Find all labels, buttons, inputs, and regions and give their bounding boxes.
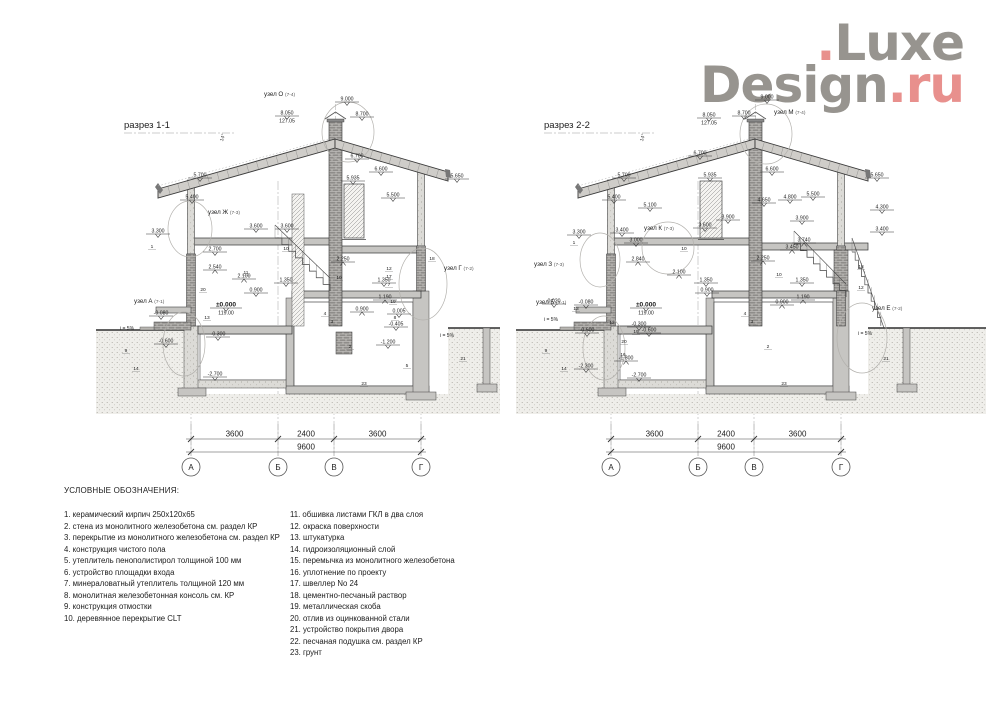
slope-label: i = 5%	[544, 317, 559, 323]
svg-text:6.700: 6.700	[351, 153, 364, 159]
svg-text:8.700: 8.700	[738, 110, 751, 116]
svg-text:1.350: 1.350	[280, 277, 293, 283]
dimension-total: 9600	[717, 443, 735, 452]
section-title-text: разрез 2-2	[544, 120, 590, 131]
callout-number: 1	[151, 244, 154, 250]
callout-number: 21	[460, 356, 466, 362]
svg-text:0.005: 0.005	[393, 308, 406, 314]
elevation-mark: ±0.000119.00	[630, 301, 662, 316]
roof	[575, 139, 871, 198]
svg-text:3.300: 3.300	[573, 229, 586, 235]
dimension-value: 3600	[646, 430, 664, 439]
svg-text:3.600: 3.600	[699, 222, 712, 228]
legend-column-1: 1. керамический кирпич 250x120x652. стен…	[64, 509, 290, 659]
legend-item: 14. гидроизоляционный слой	[290, 544, 516, 556]
legend-item: 11. обшивка листами ГКЛ в два слоя	[290, 509, 516, 521]
roof-pitch-label: 14°	[219, 133, 227, 142]
callout-number: 3	[751, 319, 754, 325]
callout-number: 23	[781, 381, 787, 387]
callout-number: 20	[200, 287, 206, 293]
svg-text:5.700: 5.700	[194, 172, 207, 178]
svg-text:3.300: 3.300	[152, 228, 165, 234]
svg-text:0.020: 0.020	[548, 298, 561, 304]
axis-letter: А	[608, 463, 614, 472]
slope-label: i = 5%	[440, 333, 455, 339]
svg-text:1.350: 1.350	[796, 277, 809, 283]
svg-text:8.700: 8.700	[356, 111, 369, 117]
callout-number: 4	[324, 311, 327, 317]
svg-text:-0.080: -0.080	[579, 299, 594, 305]
legend-item: 2. стена из монолитного железобетона см.…	[64, 521, 290, 533]
svg-text:3.600: 3.600	[281, 223, 294, 229]
legend-item: 3. перекрытие из монолитного железобетон…	[64, 532, 290, 544]
callout-number: 9	[125, 348, 128, 354]
legend-item: 12. окраска поверхности	[290, 521, 516, 533]
svg-text:1.190: 1.190	[797, 294, 810, 300]
legend-item: 7. минераловатный утеплитель толщиной 12…	[64, 578, 290, 590]
svg-text:5.650: 5.650	[871, 172, 884, 178]
callout-number: 17	[386, 274, 392, 280]
svg-text:-2.700: -2.700	[208, 371, 223, 377]
svg-text:2.540: 2.540	[209, 264, 222, 270]
svg-text:-2.700: -2.700	[632, 372, 647, 378]
svg-text:5.100: 5.100	[644, 202, 657, 208]
axis-letter: Г	[839, 463, 844, 472]
axis-letter: В	[751, 463, 756, 472]
svg-text:-1.200: -1.200	[381, 339, 396, 345]
elevation-mark: 8.050127.05	[275, 110, 299, 124]
elevation-mark: 2.540	[203, 264, 227, 273]
callout-number: 12	[858, 285, 864, 291]
legend-item: 8. монолитная железобетонная консоль см.…	[64, 590, 290, 602]
axis-letter: Г	[419, 463, 424, 472]
node-label: узел Ж (7-3)	[208, 209, 240, 216]
svg-text:0.900: 0.900	[701, 287, 714, 293]
svg-text:5.500: 5.500	[807, 191, 820, 197]
legend-item: 10. деревянное перекрытие CLT	[64, 613, 290, 625]
svg-text:-0.600: -0.600	[159, 338, 174, 344]
svg-text:-0.600: -0.600	[580, 327, 595, 333]
svg-text:5.400: 5.400	[186, 194, 199, 200]
svg-text:4.650: 4.650	[758, 197, 771, 203]
dimension-value: 3600	[369, 430, 387, 439]
svg-text:5.400: 5.400	[608, 194, 621, 200]
svg-text:3.400: 3.400	[876, 226, 889, 232]
legend-item: 4. конструкция чистого пола	[64, 544, 290, 556]
callout-number: 23	[361, 381, 367, 387]
node-label: узел К (7-3)	[644, 225, 674, 232]
attic-window	[342, 184, 366, 240]
svg-text:3.900: 3.900	[796, 215, 809, 221]
elevation-mark: 8.050127.05	[697, 112, 721, 126]
svg-text:±0.000: ±0.000	[636, 301, 656, 308]
elevation-mark: 3.900	[790, 215, 814, 224]
elevation-mark: 6.600	[760, 166, 784, 175]
svg-text:-2.300: -2.300	[579, 363, 594, 369]
elevation-mark: 3.300	[146, 228, 170, 237]
roof	[155, 139, 451, 198]
callout-number: 8	[394, 315, 397, 321]
node-label: узел Г (7-2)	[444, 265, 474, 272]
svg-text:1.350: 1.350	[700, 277, 713, 283]
elevation-mark: 3.300	[567, 229, 591, 238]
svg-text:8.050: 8.050	[281, 110, 294, 116]
callout-number: 10	[681, 246, 687, 252]
section-drawing-1-1: узел О (7-4)узел Ж (7-3)узел Г (7-2)узел…	[96, 86, 566, 486]
svg-text:3.740: 3.740	[798, 237, 811, 243]
legend-item: 5. утеплитель пенополистирол толщиной 10…	[64, 555, 290, 567]
legend-item: 16. уплотнение по проекту	[290, 567, 516, 579]
axis-letter: Б	[275, 463, 280, 472]
svg-text:6.600: 6.600	[766, 166, 779, 172]
svg-text:0.900: 0.900	[250, 287, 263, 293]
svg-text:3.600: 3.600	[250, 223, 263, 229]
drawing-sheet: .Luxe Design.ru узел О (7-4)узел Ж (7-3)…	[0, 0, 1000, 707]
legend-item: 13. штукатурка	[290, 532, 516, 544]
callout-number: 20	[621, 339, 627, 345]
svg-text:5.500: 5.500	[387, 192, 400, 198]
external-stair	[852, 238, 884, 328]
elevation-mark: 3.600	[244, 223, 268, 232]
callout-number: 4	[744, 311, 747, 317]
callout-number: 14	[561, 366, 567, 372]
svg-text:0.900: 0.900	[356, 306, 369, 312]
svg-text:6.600: 6.600	[375, 166, 388, 172]
callout-number: 2	[767, 344, 770, 350]
callout-number: 10	[283, 246, 289, 252]
legend-item: 1. керамический кирпич 250x120x65	[64, 509, 290, 521]
furnace	[336, 332, 352, 354]
node-label: узел М (7-4)	[774, 109, 806, 116]
roof-pitch-label: 14°	[639, 133, 647, 142]
svg-text:9.000: 9.000	[761, 94, 774, 100]
svg-text:4.800: 4.800	[784, 194, 797, 200]
callout-number: 1	[573, 240, 576, 246]
elevation-mark: 5.500	[381, 192, 405, 201]
elevation-mark: 0.900	[244, 287, 268, 296]
legend-item: 20. отлив из оцинкованной стали	[290, 613, 516, 625]
elevation-mark: 4.800	[778, 194, 802, 203]
svg-text:0.900: 0.900	[776, 299, 789, 305]
elevation-mark: 5.935	[341, 175, 365, 184]
svg-text:5.650: 5.650	[451, 173, 464, 179]
section-title-text: разрез 1-1	[124, 120, 170, 131]
svg-text:3.450: 3.450	[786, 244, 799, 250]
callout-number: 12	[609, 320, 615, 326]
svg-text:±0.000: ±0.000	[216, 301, 236, 308]
svg-text:5.935: 5.935	[704, 172, 717, 178]
callout-number: 21	[883, 356, 889, 362]
legend-column-2: 11. обшивка листами ГКЛ в два слоя12. ок…	[290, 509, 516, 659]
svg-text:3.400: 3.400	[616, 227, 629, 233]
elevation-mark: 5.935	[698, 172, 722, 181]
callout-number: 14	[133, 366, 139, 372]
dimension-strip: 3600240036009600АБВГ	[182, 424, 430, 476]
svg-text:6.700: 6.700	[694, 150, 707, 156]
node-label: узел А (7-1)	[134, 298, 165, 305]
callout-number: 7	[388, 282, 391, 288]
dimension-value: 2400	[297, 430, 315, 439]
svg-text:8.050: 8.050	[703, 112, 716, 118]
legend-columns: 1. керамический кирпич 250x120x652. стен…	[64, 509, 516, 659]
callout-number: 3	[331, 319, 334, 325]
dimension-value: 2400	[717, 430, 735, 439]
svg-text:2.840: 2.840	[632, 256, 645, 262]
legend-item: 19. металлическая скоба	[290, 601, 516, 613]
legend: УСЛОВНЫЕ ОБОЗНАЧЕНИЯ: 1. керамический ки…	[64, 486, 516, 659]
svg-text:5.700: 5.700	[618, 172, 631, 178]
elevation-mark: 5.500	[801, 191, 825, 200]
elevation-mark: 5.100	[638, 202, 662, 211]
elevation-mark: 9.000	[755, 94, 779, 103]
svg-text:2.250: 2.250	[337, 256, 350, 262]
legend-title: УСЛОВНЫЕ ОБОЗНАЧЕНИЯ:	[64, 486, 516, 495]
svg-text:-0.405: -0.405	[389, 321, 404, 327]
callout-number: 13	[573, 306, 579, 312]
attic-window	[698, 181, 724, 240]
callout-number: 10	[336, 275, 342, 281]
slope-label: i = 5%	[120, 326, 135, 332]
elevation-mark: ±0.000119.00	[210, 301, 242, 316]
elevation-mark: 2.840	[626, 256, 650, 265]
callout-number: 19	[633, 329, 639, 335]
dimension-value: 3600	[226, 430, 244, 439]
legend-item: 17. швеллер No 24	[290, 578, 516, 590]
callout-number: 19	[390, 299, 396, 305]
svg-text:2.250: 2.250	[757, 255, 770, 261]
svg-text:4.300: 4.300	[876, 204, 889, 210]
legend-item: 6. устройство площадки входа	[64, 567, 290, 579]
svg-text:5.935: 5.935	[347, 175, 360, 181]
legend-item: 18. цементно-песчаный раствор	[290, 590, 516, 602]
axis-letter: В	[331, 463, 336, 472]
callout-number: 13	[204, 315, 210, 321]
elevation-mark: 6.600	[369, 166, 393, 175]
legend-item: 22. песчаная подушка см. раздел КР	[290, 636, 516, 648]
callout-number: 9	[545, 348, 548, 354]
elevation-mark: 1.350	[372, 277, 396, 286]
slope-label: i = 5%	[858, 331, 873, 337]
elevation-mark: 3.400	[870, 226, 894, 235]
section-drawing-2-2: узел М (7-4)узел К (7-3)узел З (7-3)узел…	[516, 86, 986, 486]
svg-text:-0.600: -0.600	[642, 327, 657, 333]
legend-item: 21. устройство покрытия двора	[290, 624, 516, 636]
svg-text:9.000: 9.000	[341, 96, 354, 102]
svg-text:-0.080: -0.080	[154, 310, 169, 316]
legend-item: 15. перемычка из монолитного железобетон…	[290, 555, 516, 567]
svg-text:3.900: 3.900	[722, 214, 735, 220]
elevation-mark: 1.350	[694, 277, 718, 286]
legend-item: 23. грунт	[290, 647, 516, 659]
legend-item: 9. конструкция отмостки	[64, 601, 290, 613]
elevation-mark: 4.300	[870, 204, 894, 213]
elevation-mark: 1.350	[790, 277, 814, 286]
dimension-total: 9600	[297, 443, 315, 452]
callout-number: 12	[386, 266, 392, 272]
svg-text:2.100: 2.100	[673, 269, 686, 275]
svg-text:-0.300: -0.300	[211, 331, 226, 337]
node-label: узел О (7-4)	[264, 91, 295, 98]
callout-number: 18	[858, 264, 864, 270]
callout-number: 18	[429, 256, 435, 262]
callout-number: 5	[406, 363, 409, 369]
axis-letter: А	[188, 463, 194, 472]
callout-number: 10	[776, 272, 782, 278]
dimension-value: 3600	[789, 430, 807, 439]
callout-number: 11	[244, 270, 249, 276]
dimension-strip: 3600240036009600АБВГ	[602, 424, 850, 476]
node-label: узел З (7-3)	[534, 261, 564, 268]
svg-text:3.000: 3.000	[630, 237, 643, 243]
svg-text:2.700: 2.700	[209, 246, 222, 252]
callout-number: 2	[349, 344, 352, 350]
axis-letter: Б	[695, 463, 700, 472]
node-label: узел Е (7-2)	[872, 305, 903, 312]
callout-number: 16	[620, 352, 626, 358]
